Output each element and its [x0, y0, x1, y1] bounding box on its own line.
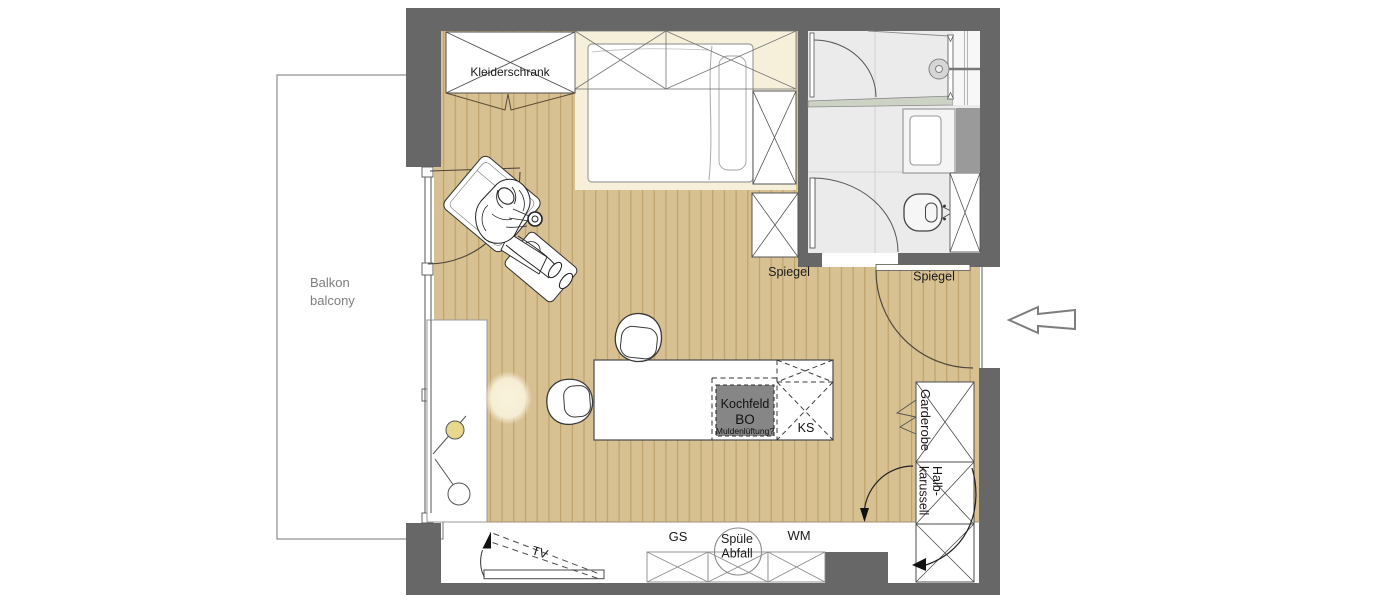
- svg-text:Muldenlüftung?: Muldenlüftung?: [716, 426, 774, 436]
- svg-text:TV: TV: [530, 543, 550, 561]
- svg-text:WM: WM: [787, 528, 810, 543]
- svg-text:Halb-: Halb-: [930, 466, 944, 496]
- svg-text:karussell: karussell: [917, 466, 931, 515]
- svg-text:Abfall: Abfall: [721, 547, 752, 561]
- svg-text:Kleiderschrank: Kleiderschrank: [470, 65, 550, 79]
- svg-text:Spiegel: Spiegel: [768, 265, 810, 279]
- svg-text:balcony: balcony: [310, 293, 355, 308]
- svg-text:KS: KS: [798, 421, 815, 435]
- svg-text:Kochfeld: Kochfeld: [721, 397, 770, 411]
- svg-text:BO: BO: [735, 412, 755, 427]
- svg-text:GS: GS: [669, 529, 688, 544]
- svg-text:Spüle: Spüle: [721, 532, 753, 546]
- svg-text:Balkon: Balkon: [310, 275, 350, 290]
- svg-text:Garderobe: Garderobe: [918, 389, 933, 451]
- svg-text:Spiegel: Spiegel: [913, 270, 955, 284]
